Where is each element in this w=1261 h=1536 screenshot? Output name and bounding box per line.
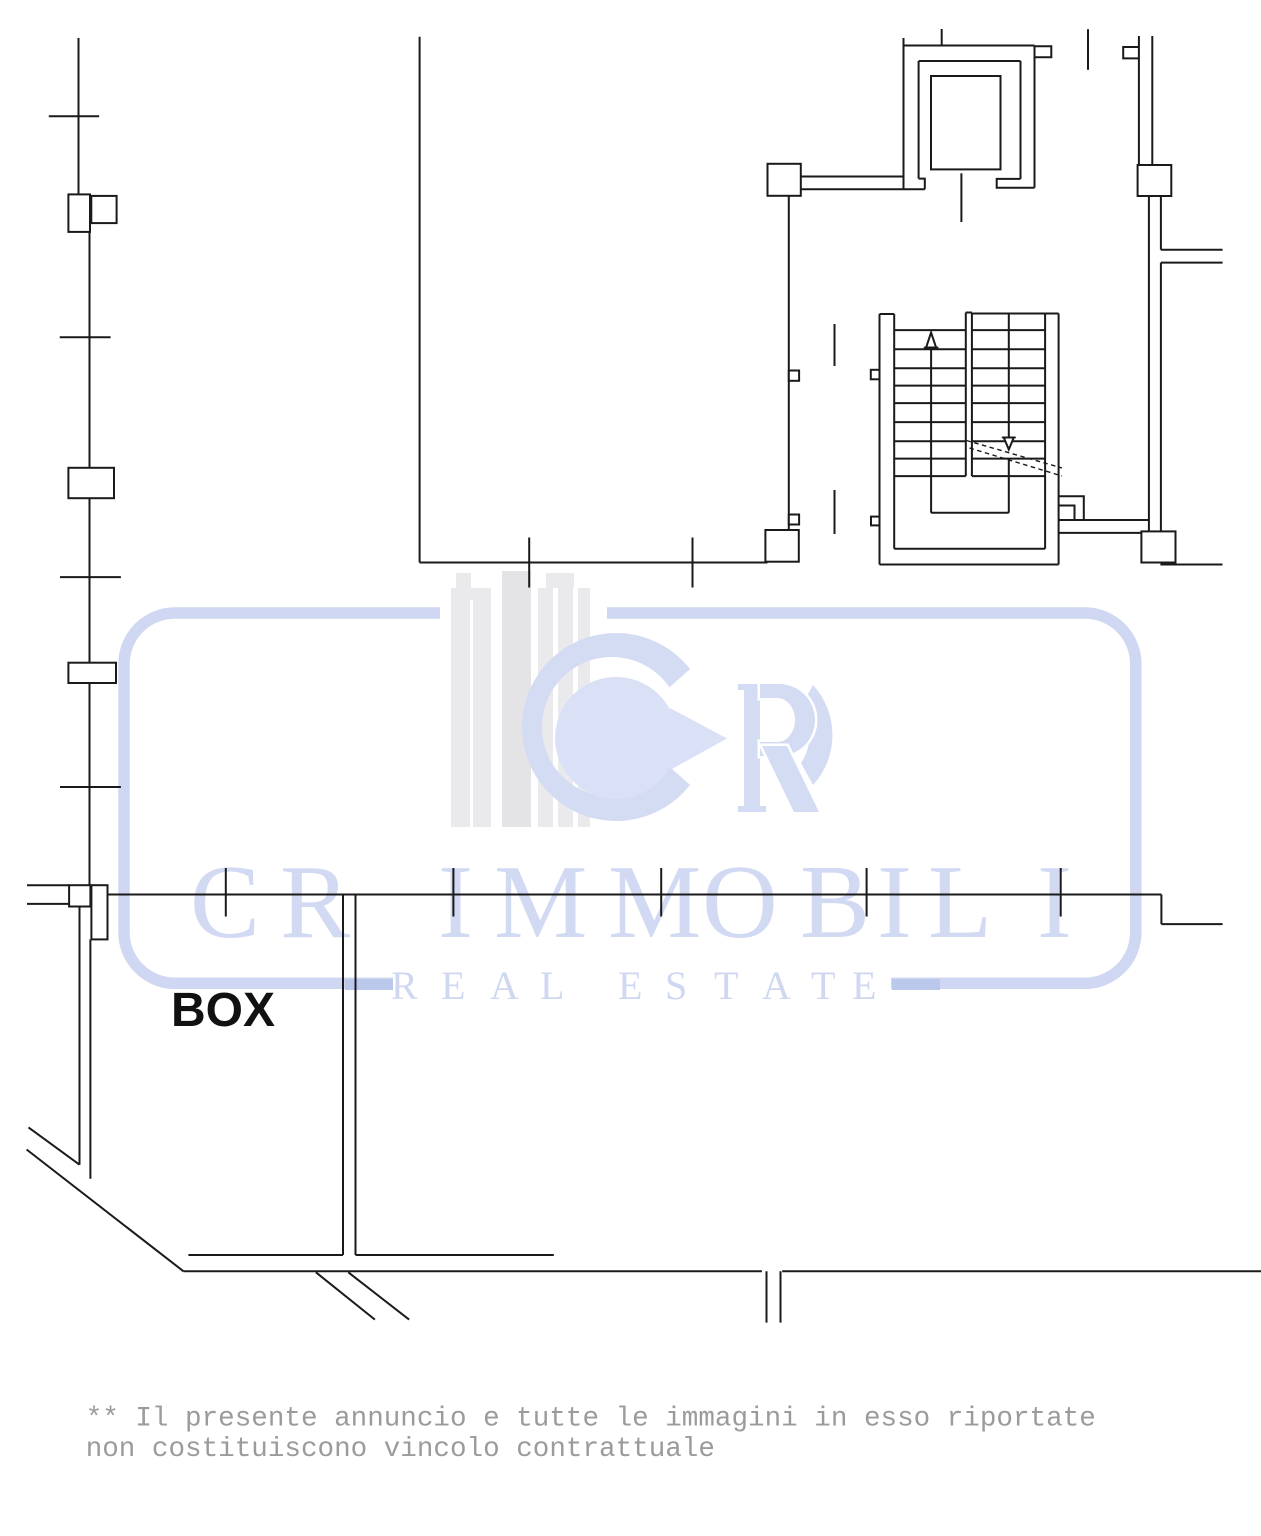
- svg-text:T: T: [714, 963, 738, 1008]
- svg-text:R: R: [280, 843, 350, 960]
- svg-text:I: I: [1037, 843, 1072, 960]
- svg-text:S: S: [665, 963, 687, 1008]
- svg-text:BOX: BOX: [171, 984, 275, 1037]
- svg-text:A: A: [490, 963, 519, 1008]
- svg-text:I: I: [877, 843, 912, 960]
- svg-text:O: O: [702, 843, 778, 960]
- svg-text:I: I: [438, 843, 473, 960]
- svg-text:E: E: [852, 963, 876, 1008]
- svg-text:L: L: [540, 963, 564, 1008]
- svg-text:A: A: [762, 963, 791, 1008]
- svg-text:non costituiscono vincolo cont: non costituiscono vincolo contrattuale: [86, 1434, 715, 1465]
- svg-text:E: E: [618, 963, 642, 1008]
- svg-text:L: L: [928, 843, 992, 960]
- svg-text:B: B: [800, 843, 870, 960]
- svg-text:** Il presente annuncio e tutt: ** Il presente annuncio e tutte le immag…: [86, 1404, 1096, 1435]
- svg-text:R: R: [391, 963, 418, 1008]
- svg-text:E: E: [441, 963, 465, 1008]
- svg-text:T: T: [811, 963, 835, 1008]
- svg-text:M: M: [608, 843, 701, 960]
- svg-text:M: M: [494, 843, 587, 960]
